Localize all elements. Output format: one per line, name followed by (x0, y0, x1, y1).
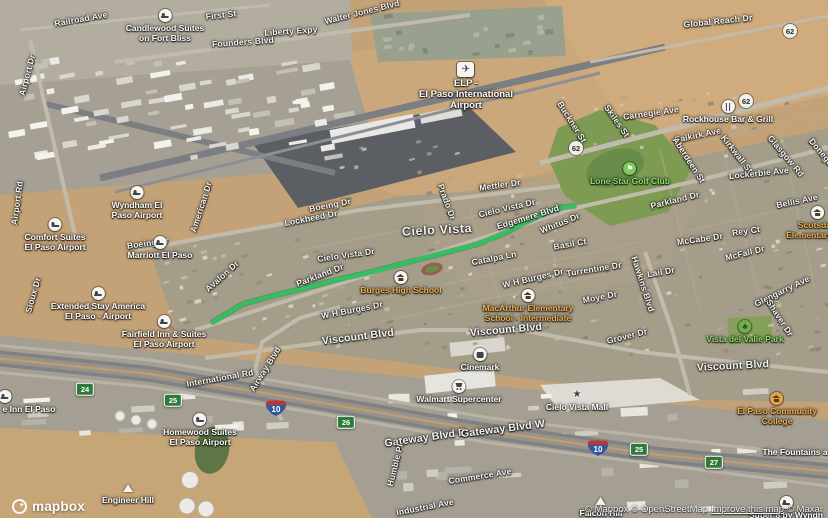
poi-label: ScotsdaleElementary Sch (786, 220, 828, 240)
poi-label: Cielo Vista Mall (546, 402, 608, 412)
street-label: Liberty Expy (264, 24, 318, 38)
street-label: Boeing Dr (308, 196, 352, 214)
street-label: American Dr (188, 180, 214, 233)
poi-comfort-suites: Comfort SuitesEl Paso Airport (24, 218, 85, 252)
poi-label: e Inn El Paso (3, 404, 56, 414)
street-label: McFall Dr (724, 243, 765, 262)
us-shield-62: 62 (783, 24, 797, 38)
hotel-icon (130, 186, 143, 199)
street-label: Lail Dr (646, 265, 675, 280)
street-label: Prado Dr (436, 183, 458, 222)
street-label: Grover Dr (606, 326, 649, 346)
poi-label: El Paso CommunityCollege (737, 406, 817, 426)
poi-label: Rockhouse Bar & Grill (683, 114, 773, 124)
street-label: Rey Ct (731, 224, 760, 238)
street-label: Bellis Ave (775, 192, 818, 211)
street-label: Buckner St (555, 99, 588, 144)
street-label: Moye Dr (582, 289, 618, 305)
street-label: Walter Jones Blvd (324, 0, 401, 26)
interstate-shield-10: 10 (588, 440, 609, 456)
street-label: Viscount Blvd (321, 327, 394, 348)
street-label: Gateway Blvd E (384, 426, 466, 449)
street-label: Lockheed Dr (284, 208, 339, 228)
street-label: Avalon Dr (203, 258, 241, 293)
street-label: Edgemere Blvd (496, 203, 561, 231)
exit-shield-25: 25 (630, 443, 648, 456)
street-label: Boeing Dr (126, 235, 169, 251)
poi-cinemark: Cinemark (461, 348, 500, 372)
poi-label: Fairfield Inn & SuitesEl Paso Airport (122, 329, 207, 349)
street-label: Airport Rd (9, 181, 25, 226)
park-icon: ♣ (739, 320, 752, 333)
street-label: Viscount Blvd (697, 358, 770, 374)
hotel-icon (91, 287, 104, 300)
street-label: First St (205, 8, 237, 21)
poi-walmart-supercenter: Walmart Supercenter (416, 380, 501, 404)
poi-label: Vista del Valle Park (706, 334, 783, 344)
poi-el-paso-community-college: El Paso CommunityCollege (737, 392, 817, 426)
poi-label: Candlewood Suiteson Fort Bliss (126, 23, 204, 43)
street-label: Industrial Ave (395, 497, 454, 518)
street-label: Falkirk Ave (674, 125, 722, 145)
street-label: Turrentine Dr (566, 260, 623, 279)
restaurant-icon (722, 100, 735, 113)
attribution-mapbox-link[interactable]: © Mapbox (585, 504, 628, 515)
school-icon (394, 271, 407, 284)
street-label: Viscount Blvd (469, 321, 542, 339)
street-label: Mettler Dr (479, 177, 522, 193)
poi-macarthur-elementary: MacArthur ElementarySchool - Intermediat… (483, 289, 574, 323)
hotel-icon (194, 413, 207, 426)
exit-shield-26: 26 (337, 416, 355, 429)
street-label: Hawkins Blvd (629, 255, 656, 313)
street-label: Cielo Vista Dr (317, 246, 376, 264)
poi-label: The Fountains a (762, 447, 827, 457)
poi-scotsdale-elementary: ScotsdaleElementary Sch (786, 206, 828, 240)
interstate-shield-10: 10 (266, 400, 287, 416)
poi-label: Lone Star Golf Club (590, 176, 670, 186)
cinema-icon (474, 348, 487, 361)
street-label: Global Reach Dr (683, 12, 753, 29)
poi-marriott: Marriott El Paso (128, 236, 193, 260)
hotel-icon (0, 390, 12, 403)
street-label: Cielo Vista (402, 221, 473, 239)
poi-label: ELP -El Paso InternationalAirport (419, 78, 513, 112)
attribution-maxar-link[interactable]: © Maxar (787, 504, 823, 515)
street-label: Gateway Blvd W (460, 418, 545, 440)
street-label: Commerce Ave (448, 466, 512, 486)
attribution-bar: © Mapbox© OpenStreetMapImprove this map©… (582, 504, 823, 515)
poi-rockhouse-bar-grill: Rockhouse Bar & Grill (683, 100, 773, 124)
hill-icon (122, 481, 135, 494)
poi-fairfield-inn: Fairfield Inn & SuitesEl Paso Airport (122, 315, 207, 349)
poi-label: Walmart Supercenter (416, 394, 501, 404)
poi-label: Marriott El Paso (128, 250, 193, 260)
poi-label: Comfort SuitesEl Paso Airport (24, 232, 85, 252)
hotel-icon (154, 236, 167, 249)
airport-icon: ✈ (458, 62, 475, 77)
map-labels-layer: Railroad AveFirst StFounders BlvdLiberty… (0, 0, 828, 518)
street-label: Glasgow Rd (766, 133, 807, 179)
poi-the-fountains: The Fountains a (762, 446, 827, 457)
street-label: Airport Dr (17, 53, 38, 96)
street-label: Basil Ct (553, 236, 587, 252)
street-label: Shaver Dr (764, 298, 795, 339)
exit-shield-27: 27 (705, 456, 723, 469)
poi-label: Burges High School (360, 285, 441, 295)
poi-label: Engineer Hill (102, 495, 154, 505)
street-label: Lockerbie Ave (729, 165, 790, 181)
hotel-icon (49, 218, 62, 231)
street-label: Humble Pl (385, 443, 405, 488)
street-label: W H Burges Dr (501, 266, 564, 290)
street-label: Airway Blvd (247, 345, 282, 393)
school-icon (812, 206, 825, 219)
poi-engineer-hill: Engineer Hill (102, 481, 154, 505)
golf-icon: ⚑ (624, 162, 637, 175)
street-label: Donegal (807, 136, 828, 169)
mapbox-logo-text: mapbox (32, 499, 85, 514)
poi-label: Cinemark (461, 362, 500, 372)
exit-shield-24: 24 (76, 383, 94, 396)
street-label: W H Burges Dr (320, 299, 383, 321)
street-label: McCabe Dr (676, 231, 723, 247)
street-label: Catalpa Ln (471, 249, 518, 267)
mapbox-logo-icon (12, 499, 27, 514)
street-label: Whitus Dr (539, 211, 582, 236)
poi-wyndham: Wyndham ElPaso Airport (112, 186, 163, 220)
street-label: Founders Blvd (212, 35, 275, 49)
us-shield-62: 62 (569, 141, 583, 155)
poi-lone-star-golf-club: ⚑Lone Star Golf Club (590, 162, 670, 186)
poi-label: Extended Stay AmericaEl Paso - Airport (51, 301, 145, 321)
us-shield-62: 62 (739, 94, 753, 108)
poi-vista-del-valle-park: ♣Vista del Valle Park (706, 320, 783, 344)
poi-label: Wyndham ElPaso Airport (112, 200, 163, 220)
hotel-icon (157, 315, 170, 328)
store-icon (453, 380, 466, 393)
poi-label: MacArthur ElementarySchool - Intermediat… (483, 303, 574, 323)
street-label: Sioux Dr (23, 276, 43, 314)
street-label: Parkland Dr (650, 189, 701, 211)
college-icon (770, 392, 783, 405)
map-canvas[interactable]: Railroad AveFirst StFounders BlvdLiberty… (0, 0, 828, 518)
street-label: Glengarry Ave (753, 273, 811, 308)
poi-extended-stay: Extended Stay AmericaEl Paso - Airport (51, 287, 145, 321)
attribution-improve-link[interactable]: Improve this map (711, 504, 784, 515)
poi-label: Homewood SuitesEl Paso Airport (163, 427, 237, 447)
school-icon (521, 289, 534, 302)
mapbox-logo[interactable]: mapbox (12, 499, 85, 514)
street-label: Parkland Dr (295, 261, 345, 288)
mall-icon: ★ (570, 388, 583, 401)
exit-shield-25: 25 (164, 394, 182, 407)
street-label: International Rd (186, 367, 255, 389)
street-label: Kirkwall St (719, 133, 755, 175)
street-label: Railroad Ave (54, 9, 109, 28)
street-label: Aberdeen St (671, 135, 708, 184)
poi-inn-el-paso: e Inn El Paso (0, 390, 31, 414)
poi-homewood-suites: Homewood SuitesEl Paso Airport (163, 413, 237, 447)
street-label: Skiles St (602, 103, 632, 139)
attribution-osm-link[interactable]: © OpenStreetMap (631, 504, 708, 515)
hotel-icon (159, 9, 172, 22)
poi-cielo-vista-mall: ★Cielo Vista Mall (546, 388, 608, 412)
street-label: Cielo Vista Dr (478, 197, 537, 220)
poi-candlewood-suites: Candlewood Suiteson Fort Bliss (126, 9, 204, 43)
street-label: Carnegie Ave (623, 104, 680, 122)
poi-elp-airport: ✈ELP -El Paso InternationalAirport (419, 62, 513, 112)
poi-burges-high-school: Burges High School (360, 271, 441, 295)
